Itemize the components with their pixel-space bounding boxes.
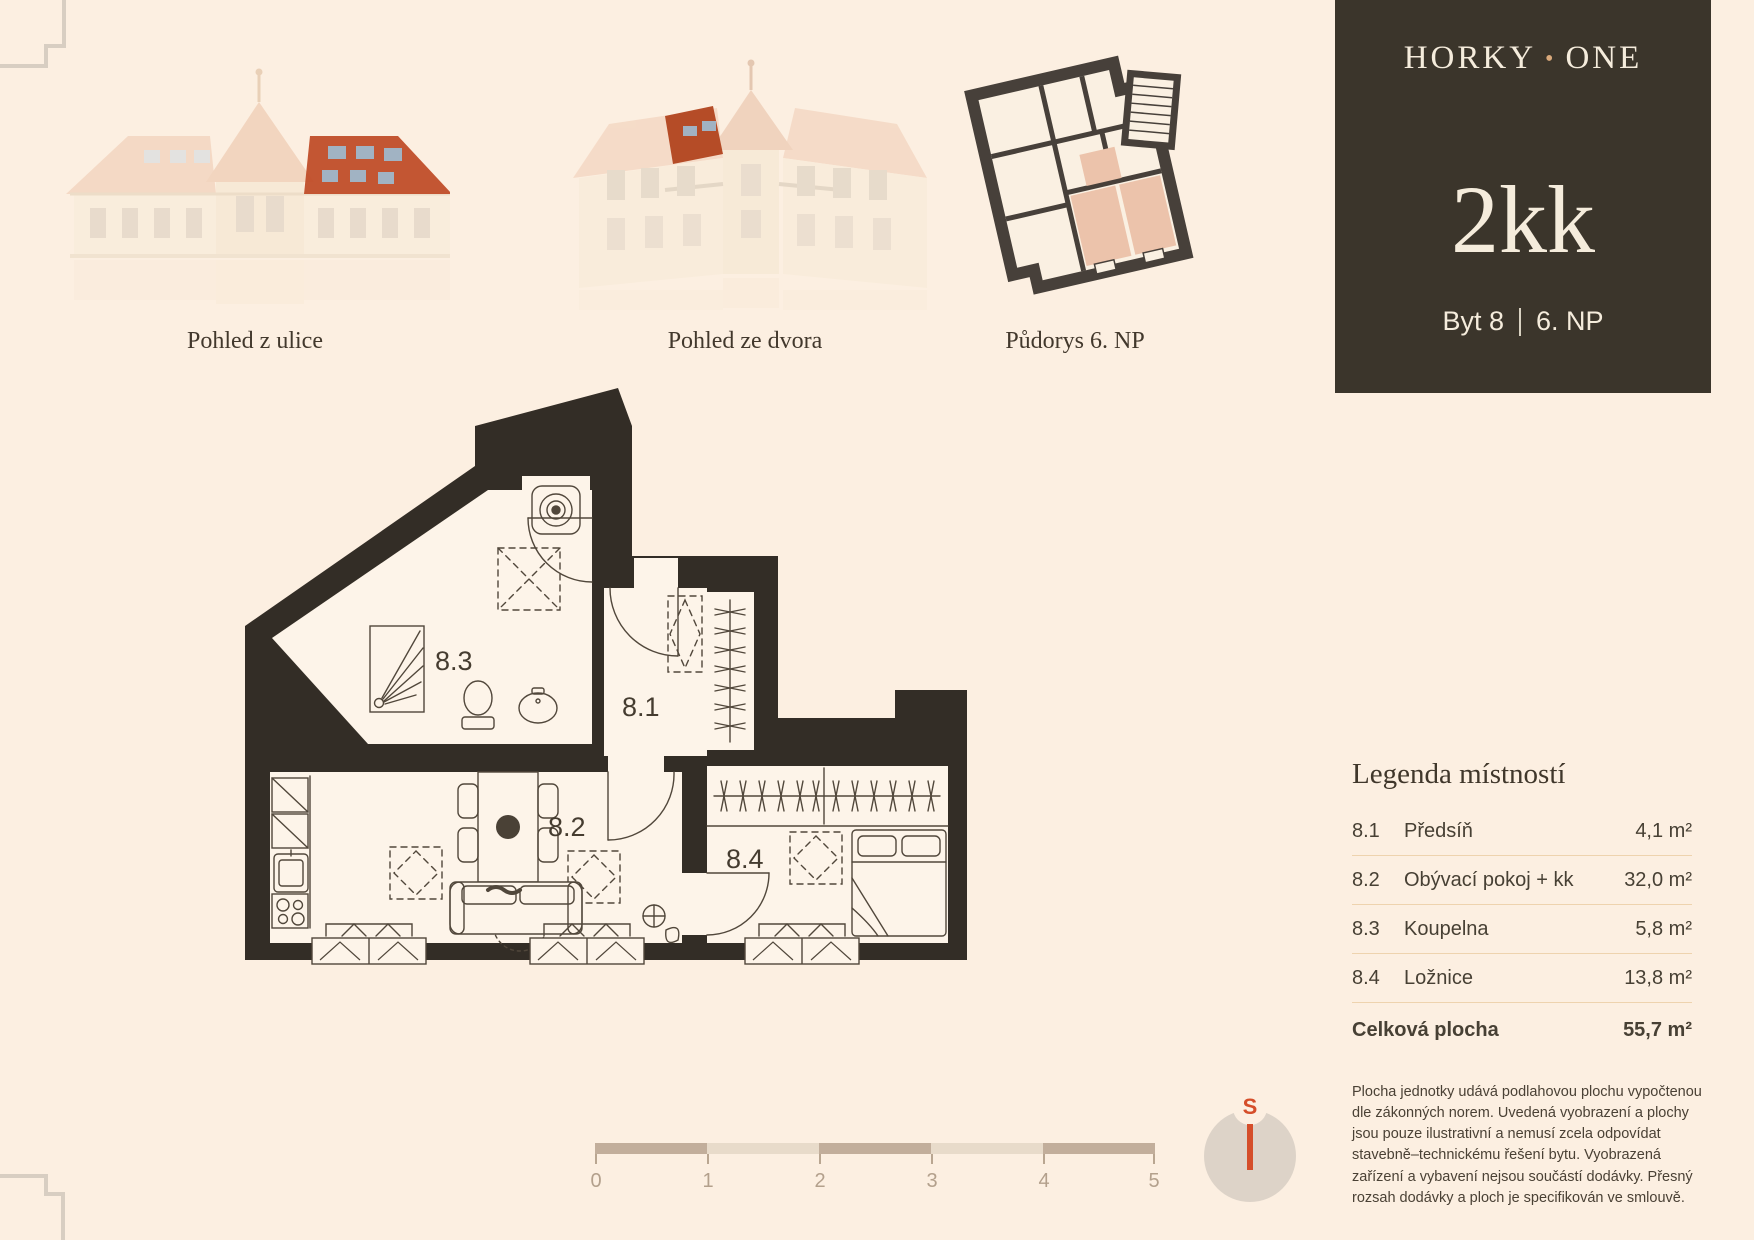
window-icon xyxy=(745,938,859,964)
legend-total-row: Celková plocha 55,7 m² xyxy=(1352,1003,1692,1054)
entrance-door-gap xyxy=(634,558,678,588)
room-number: 8.4 xyxy=(1352,967,1404,990)
window-icon xyxy=(530,938,644,964)
room-name: Předsíň xyxy=(1404,820,1635,843)
scale-tick xyxy=(819,1154,821,1164)
room-label-81: 8.1 xyxy=(622,692,660,722)
building-street-illustration xyxy=(60,42,450,304)
scale-tick xyxy=(595,1154,597,1164)
scale-segment xyxy=(1043,1143,1155,1154)
brand-logo-one: ONE xyxy=(1565,40,1642,76)
scale-segment xyxy=(707,1143,819,1154)
table-plant-icon xyxy=(496,815,520,839)
main-floorplan: 8.3 8.1 8.2 8.4 xyxy=(230,368,970,968)
scale-tick xyxy=(931,1154,933,1164)
legend-row: 8.3 Koupelna 5,8 m² xyxy=(1352,905,1692,954)
legend-row: 8.4 Ložnice 13,8 m² xyxy=(1352,954,1692,1003)
disclaimer-text: Plocha jednotky udává podlahovou plochu … xyxy=(1352,1082,1704,1209)
legend-title: Legenda místností xyxy=(1352,758,1692,791)
room-name: Koupelna xyxy=(1404,918,1635,941)
stairwell xyxy=(1121,70,1181,150)
scale-bar: 0 1 2 3 4 5 xyxy=(595,1143,1155,1193)
scale-label: 3 xyxy=(917,1170,947,1193)
building-courtyard-illustration xyxy=(545,42,945,314)
unit-number: Byt 8 xyxy=(1442,306,1504,336)
scale-label: 4 xyxy=(1029,1170,1059,1193)
living-door-gap xyxy=(608,756,664,772)
unit-type: 2kk xyxy=(1335,172,1711,268)
scale-label: 5 xyxy=(1139,1170,1169,1193)
scale-segment xyxy=(931,1143,1043,1154)
unit-info-box: HORKY•ONE 2kk Byt 86. NP xyxy=(1335,0,1711,393)
room-area: 4,1 m² xyxy=(1635,820,1692,843)
highlighted-roof-section xyxy=(304,136,450,194)
room-number: 8.2 xyxy=(1352,869,1404,892)
room-name: Obývací pokoj + kk xyxy=(1404,869,1624,892)
compass-north-label: S xyxy=(1243,1098,1258,1119)
total-area: 55,7 m² xyxy=(1623,1019,1692,1042)
scale-segment xyxy=(595,1143,707,1154)
bedroom-door-gap xyxy=(682,873,707,935)
scale-segment xyxy=(819,1143,931,1154)
brand-logo-dot-icon: • xyxy=(1536,46,1565,72)
room-label-83: 8.3 xyxy=(435,646,473,676)
brochure-page: Pohled z ulice xyxy=(0,0,1754,1240)
room-area: 32,0 m² xyxy=(1624,869,1692,892)
room-legend: Legenda místností 8.1 Předsíň 4,1 m² 8.2… xyxy=(1352,758,1692,1054)
legend-row: 8.1 Předsíň 4,1 m² xyxy=(1352,807,1692,856)
brand-logo-horky: HORKY xyxy=(1404,40,1536,76)
compass-icon: S xyxy=(1202,1098,1298,1208)
room-name: Ložnice xyxy=(1404,967,1624,990)
floor-overview-plan xyxy=(945,30,1210,325)
total-label: Celková plocha xyxy=(1352,1019,1623,1042)
caption-street-view: Pohled z ulice xyxy=(60,328,450,355)
sofa-icon xyxy=(450,882,582,934)
caption-floor-overview: Půdorys 6. NP xyxy=(880,328,1270,355)
unit-number-floor: Byt 86. NP xyxy=(1335,306,1711,337)
room-number: 8.1 xyxy=(1352,820,1404,843)
scale-label: 1 xyxy=(693,1170,723,1193)
unit-floor: 6. NP xyxy=(1536,306,1604,336)
divider xyxy=(1519,308,1521,336)
room-area: 5,8 m² xyxy=(1635,918,1692,941)
window-bays xyxy=(312,938,859,964)
scale-tick xyxy=(707,1154,709,1164)
room-label-84: 8.4 xyxy=(726,844,764,874)
scale-label: 2 xyxy=(805,1170,835,1193)
scale-tick xyxy=(1043,1154,1045,1164)
corner-ornament-bottom-left xyxy=(0,1166,110,1240)
room-label-82: 8.2 xyxy=(548,812,586,842)
highlighted-roof-section xyxy=(665,106,723,164)
window-icon xyxy=(312,938,426,964)
room-area: 13,8 m² xyxy=(1624,967,1692,990)
legend-row: 8.2 Obývací pokoj + kk 32,0 m² xyxy=(1352,856,1692,905)
brand-logo: HORKY•ONE xyxy=(1335,40,1711,77)
scale-tick xyxy=(1153,1154,1155,1164)
room-number: 8.3 xyxy=(1352,918,1404,941)
scale-label: 0 xyxy=(581,1170,611,1193)
